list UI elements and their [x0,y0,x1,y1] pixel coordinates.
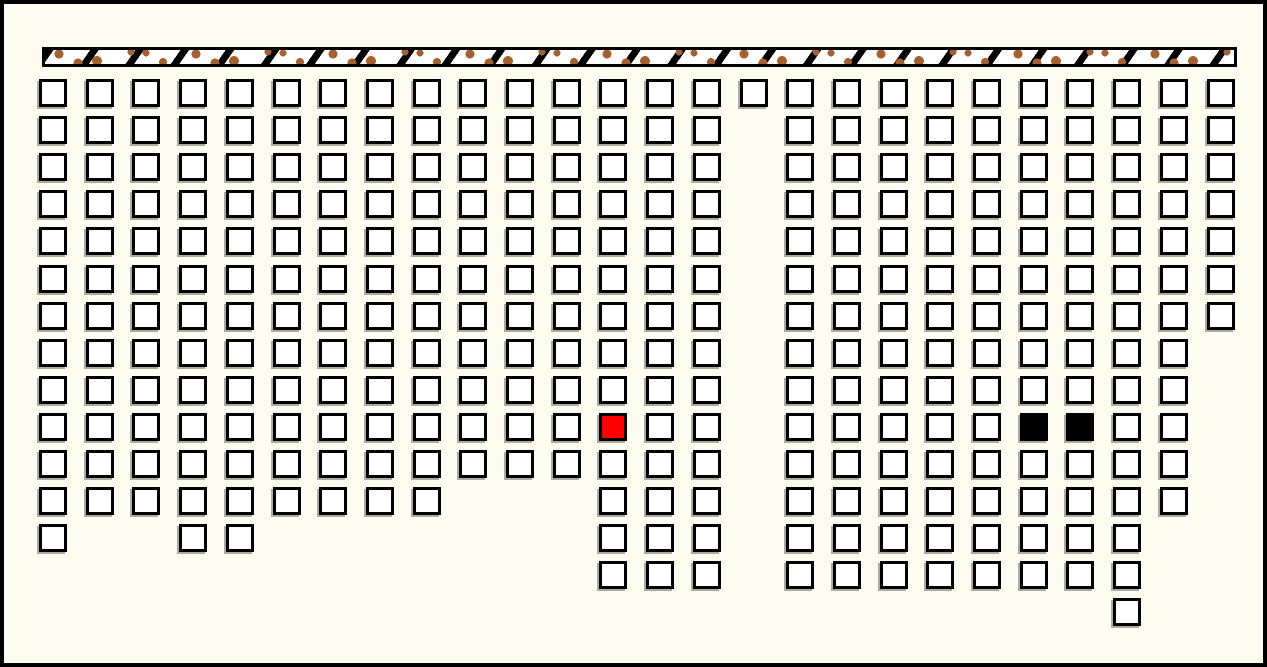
seat-cell[interactable] [366,265,394,293]
seat-cell[interactable] [973,302,1001,330]
seat-cell[interactable] [880,153,908,181]
seat-cell[interactable] [226,524,254,552]
seat-cell[interactable] [926,450,954,478]
seat-cell[interactable] [179,153,207,181]
seat-cell[interactable] [273,265,301,293]
seat-cell[interactable] [413,265,441,293]
seat-cell[interactable] [1207,116,1235,144]
seat-cell[interactable] [273,190,301,218]
seat-cell[interactable] [693,116,721,144]
seat-cell[interactable] [693,190,721,218]
seat-cell[interactable] [319,265,347,293]
seat-cell[interactable] [646,376,674,404]
seat-cell[interactable] [786,302,814,330]
seat-cell[interactable] [973,153,1001,181]
seat-cell[interactable] [1020,450,1048,478]
seat-cell[interactable] [1066,487,1094,515]
seat-cell[interactable] [833,227,861,255]
seat-cell[interactable] [646,79,674,107]
seat-cell[interactable] [880,524,908,552]
seat-cell[interactable] [973,227,1001,255]
seat-cell[interactable] [319,190,347,218]
seat-cell[interactable] [1020,302,1048,330]
seat-cell[interactable] [132,487,160,515]
seat-cell[interactable] [553,265,581,293]
seat-cell[interactable] [179,79,207,107]
seat-cell[interactable] [413,116,441,144]
seat-cell[interactable] [273,450,301,478]
seat-cell[interactable] [1160,153,1188,181]
seat-cell[interactable] [1160,450,1188,478]
seat-cell[interactable] [880,227,908,255]
seat-cell[interactable] [833,79,861,107]
seat-cell[interactable] [506,227,534,255]
seat-cell[interactable] [553,227,581,255]
seat-cell[interactable] [179,413,207,441]
seat-cell[interactable] [1020,153,1048,181]
seat-cell[interactable] [973,524,1001,552]
seat-cell[interactable] [693,339,721,367]
seat-cell[interactable] [273,79,301,107]
seat-cell[interactable] [973,561,1001,589]
seat-cell[interactable] [646,450,674,478]
seat-cell[interactable] [1113,450,1141,478]
seat-cell[interactable] [366,190,394,218]
seat-cell[interactable] [1066,227,1094,255]
seat-cell[interactable] [459,79,487,107]
seat-cell[interactable] [880,376,908,404]
seat-cell[interactable] [599,487,627,515]
seat-cell[interactable] [319,153,347,181]
seat-cell[interactable] [833,153,861,181]
seat-cell[interactable] [366,79,394,107]
seat-cell[interactable] [926,227,954,255]
seat-cell[interactable] [413,450,441,478]
seat-cell[interactable] [1066,339,1094,367]
seat-cell[interactable] [1020,376,1048,404]
seat-cell[interactable] [226,153,254,181]
seat-cell[interactable] [366,376,394,404]
seat-cell[interactable] [1207,153,1235,181]
seat-cell[interactable] [226,265,254,293]
seat-cell[interactable] [740,79,768,107]
seat-cell[interactable] [273,153,301,181]
seat-cell[interactable] [39,79,67,107]
seat-cell[interactable] [693,302,721,330]
seat-cell[interactable] [553,339,581,367]
seat-cell[interactable] [506,376,534,404]
seat-cell[interactable] [226,302,254,330]
seat-cell[interactable] [833,265,861,293]
seat-cell[interactable] [1113,487,1141,515]
seat-cell[interactable] [599,153,627,181]
seat-cell[interactable] [1066,265,1094,293]
seat-cell[interactable] [132,79,160,107]
seat-cell[interactable] [880,450,908,478]
seat-cell[interactable] [132,265,160,293]
seat-cell[interactable] [926,524,954,552]
seat-cell[interactable] [86,450,114,478]
seat-cell[interactable] [926,487,954,515]
seat-cell[interactable] [226,190,254,218]
seat-cell[interactable] [1207,190,1235,218]
seat-cell[interactable] [1066,116,1094,144]
seat-cell[interactable] [179,376,207,404]
seat-cell[interactable] [132,450,160,478]
seat-cell[interactable] [319,227,347,255]
seat-cell[interactable] [1160,339,1188,367]
seat-cell[interactable] [553,190,581,218]
seat-cell[interactable] [319,339,347,367]
seat-cell[interactable] [226,339,254,367]
seat-cell[interactable] [413,153,441,181]
seat-cell[interactable] [39,227,67,255]
seat-cell[interactable] [1113,339,1141,367]
seat-cell[interactable] [1113,227,1141,255]
seat-cell[interactable] [599,227,627,255]
seat-cell[interactable] [973,265,1001,293]
seat-cell[interactable] [646,487,674,515]
seat-cell[interactable] [459,190,487,218]
seat-cell[interactable] [926,302,954,330]
seat-cell[interactable] [833,413,861,441]
seat-cell[interactable] [833,116,861,144]
seat-cell[interactable] [366,487,394,515]
seat-cell[interactable] [132,302,160,330]
seat-cell[interactable] [1020,190,1048,218]
seat-cell[interactable] [366,339,394,367]
seat-cell[interactable] [86,190,114,218]
seat-cell[interactable] [926,413,954,441]
seat-cell[interactable] [413,376,441,404]
seat-cell[interactable] [926,376,954,404]
seat-cell-black[interactable] [1020,413,1048,441]
seat-cell[interactable] [459,227,487,255]
seat-cell[interactable] [1160,265,1188,293]
seat-cell[interactable] [1113,265,1141,293]
seat-cell[interactable] [226,487,254,515]
seat-cell[interactable] [1160,376,1188,404]
seat-cell[interactable] [693,450,721,478]
seat-cell[interactable] [599,524,627,552]
seat-cell[interactable] [39,376,67,404]
seat-cell[interactable] [39,116,67,144]
seat-cell[interactable] [226,79,254,107]
seat-cell[interactable] [693,153,721,181]
seat-cell[interactable] [1066,561,1094,589]
seat-cell[interactable] [39,302,67,330]
seat-cell[interactable] [273,116,301,144]
seat-cell[interactable] [273,487,301,515]
seat-cell[interactable] [973,450,1001,478]
seat-cell[interactable] [132,227,160,255]
seat-cell[interactable] [553,413,581,441]
seat-cell[interactable] [413,302,441,330]
seat-cell[interactable] [926,339,954,367]
seat-cell[interactable] [786,190,814,218]
seat-cell[interactable] [1113,190,1141,218]
seat-cell[interactable] [1020,116,1048,144]
seat-cell[interactable] [786,116,814,144]
seat-cell[interactable] [132,190,160,218]
seat-cell[interactable] [1207,79,1235,107]
seat-cell[interactable] [1066,376,1094,404]
seat-cell[interactable] [132,116,160,144]
seat-cell[interactable] [179,524,207,552]
seat-cell[interactable] [926,265,954,293]
seat-cell[interactable] [833,561,861,589]
seat-cell[interactable] [786,153,814,181]
seat-cell[interactable] [459,376,487,404]
seat-cell[interactable] [693,524,721,552]
seat-cell[interactable] [646,413,674,441]
seat-cell[interactable] [880,561,908,589]
seat-cell[interactable] [39,339,67,367]
seat-cell[interactable] [39,450,67,478]
seat-cell[interactable] [459,339,487,367]
seat-cell[interactable] [506,265,534,293]
seat-cell[interactable] [1160,413,1188,441]
seat-cell[interactable] [319,116,347,144]
seat-cell[interactable] [693,413,721,441]
seat-cell[interactable] [693,376,721,404]
seat-cell[interactable] [693,79,721,107]
seat-cell[interactable] [273,302,301,330]
seat-cell[interactable] [39,190,67,218]
seat-cell[interactable] [1113,598,1141,626]
seat-cell[interactable] [413,487,441,515]
seat-cell[interactable] [880,79,908,107]
seat-cell[interactable] [1020,561,1048,589]
seat-cell[interactable] [366,153,394,181]
seat-cell[interactable] [599,376,627,404]
seat-cell[interactable] [413,339,441,367]
seat-cell[interactable] [506,339,534,367]
seat-cell[interactable] [86,302,114,330]
seat-cell[interactable] [786,524,814,552]
seat-cell[interactable] [226,376,254,404]
seat-cell[interactable] [1113,524,1141,552]
seat-cell[interactable] [1066,524,1094,552]
seat-cell[interactable] [1066,79,1094,107]
seat-cell[interactable] [39,413,67,441]
seat-cell[interactable] [86,153,114,181]
seat-cell[interactable] [1113,376,1141,404]
seat-cell[interactable] [880,487,908,515]
seat-cell[interactable] [1113,302,1141,330]
seat-cell[interactable] [39,524,67,552]
seat-cell[interactable] [646,265,674,293]
seat-cell[interactable] [506,450,534,478]
seat-cell[interactable] [1160,227,1188,255]
seat-cell[interactable] [973,116,1001,144]
seat-cell[interactable] [1020,79,1048,107]
seat-cell[interactable] [973,487,1001,515]
seat-cell[interactable] [646,190,674,218]
seat-cell[interactable] [880,339,908,367]
seat-cell[interactable] [880,265,908,293]
seat-cell[interactable] [179,265,207,293]
seat-cell[interactable] [1160,302,1188,330]
seat-cell[interactable] [1113,116,1141,144]
seat-cell[interactable] [273,413,301,441]
seat-cell[interactable] [786,450,814,478]
seat-cell[interactable] [1066,302,1094,330]
seat-cell[interactable] [833,524,861,552]
seat-cell[interactable] [926,79,954,107]
seat-cell[interactable] [1160,116,1188,144]
seat-cell[interactable] [786,227,814,255]
seat-cell[interactable] [553,79,581,107]
seat-cell[interactable] [599,190,627,218]
seat-cell[interactable] [413,190,441,218]
seat-cell[interactable] [646,153,674,181]
seat-cell[interactable] [833,487,861,515]
seat-cell[interactable] [786,265,814,293]
seat-cell[interactable] [833,190,861,218]
seat-cell[interactable] [506,116,534,144]
seat-cell[interactable] [319,487,347,515]
seat-cell-black[interactable] [1066,413,1094,441]
seat-cell[interactable] [973,376,1001,404]
seat-cell[interactable] [86,376,114,404]
seat-cell[interactable] [179,450,207,478]
seat-cell[interactable] [646,302,674,330]
seat-cell[interactable] [132,413,160,441]
seat-cell[interactable] [1113,561,1141,589]
seat-cell[interactable] [86,79,114,107]
seat-cell[interactable] [506,302,534,330]
seat-cell[interactable] [413,227,441,255]
seat-cell[interactable] [553,450,581,478]
seat-cell[interactable] [786,79,814,107]
seat-cell[interactable] [693,227,721,255]
seat-cell[interactable] [179,190,207,218]
seat-cell[interactable] [86,116,114,144]
seat-cell[interactable] [1020,487,1048,515]
seat-cell[interactable] [693,561,721,589]
seat-cell[interactable] [506,153,534,181]
seat-cell[interactable] [786,561,814,589]
seat-cell-red[interactable] [599,413,627,441]
seat-cell[interactable] [179,302,207,330]
seat-cell[interactable] [226,227,254,255]
seat-cell[interactable] [226,450,254,478]
seat-cell[interactable] [506,79,534,107]
seat-cell[interactable] [833,302,861,330]
seat-cell[interactable] [506,190,534,218]
seat-cell[interactable] [786,376,814,404]
seat-cell[interactable] [132,339,160,367]
seat-cell[interactable] [646,116,674,144]
seat-cell[interactable] [459,153,487,181]
seat-cell[interactable] [693,265,721,293]
seat-cell[interactable] [833,376,861,404]
seat-cell[interactable] [1066,153,1094,181]
seat-cell[interactable] [226,116,254,144]
seat-cell[interactable] [179,116,207,144]
seat-cell[interactable] [693,487,721,515]
seat-cell[interactable] [1160,487,1188,515]
seat-cell[interactable] [1207,265,1235,293]
seat-cell[interactable] [319,376,347,404]
seat-cell[interactable] [973,190,1001,218]
seat-cell[interactable] [226,413,254,441]
seat-cell[interactable] [973,339,1001,367]
seat-cell[interactable] [926,190,954,218]
seat-cell[interactable] [1207,227,1235,255]
seat-cell[interactable] [1160,79,1188,107]
seat-cell[interactable] [599,561,627,589]
seat-cell[interactable] [926,153,954,181]
seat-cell[interactable] [366,302,394,330]
seat-cell[interactable] [1160,190,1188,218]
seat-cell[interactable] [506,413,534,441]
seat-cell[interactable] [39,487,67,515]
seat-cell[interactable] [459,450,487,478]
seat-cell[interactable] [926,561,954,589]
seat-cell[interactable] [319,302,347,330]
seat-cell[interactable] [553,376,581,404]
seat-cell[interactable] [39,153,67,181]
seat-cell[interactable] [646,524,674,552]
seat-cell[interactable] [319,450,347,478]
seat-cell[interactable] [786,487,814,515]
seat-cell[interactable] [973,413,1001,441]
seat-cell[interactable] [1020,227,1048,255]
seat-cell[interactable] [599,302,627,330]
seat-cell[interactable] [366,450,394,478]
seat-cell[interactable] [646,339,674,367]
seat-cell[interactable] [1113,413,1141,441]
seat-cell[interactable] [366,227,394,255]
seat-cell[interactable] [646,561,674,589]
seat-cell[interactable] [1020,265,1048,293]
seat-cell[interactable] [86,339,114,367]
seat-cell[interactable] [786,413,814,441]
seat-cell[interactable] [1113,79,1141,107]
seat-cell[interactable] [786,339,814,367]
seat-cell[interactable] [1066,190,1094,218]
seat-cell[interactable] [132,153,160,181]
seat-cell[interactable] [459,265,487,293]
seat-cell[interactable] [86,227,114,255]
seat-cell[interactable] [833,450,861,478]
seat-cell[interactable] [179,227,207,255]
seat-cell[interactable] [599,265,627,293]
seat-cell[interactable] [553,153,581,181]
seat-cell[interactable] [86,487,114,515]
seat-cell[interactable] [459,116,487,144]
seat-cell[interactable] [179,487,207,515]
seat-cell[interactable] [179,339,207,367]
seat-cell[interactable] [273,376,301,404]
seat-cell[interactable] [599,339,627,367]
seat-cell[interactable] [1066,450,1094,478]
seat-cell[interactable] [273,339,301,367]
seat-cell[interactable] [880,302,908,330]
seat-cell[interactable] [413,413,441,441]
seat-cell[interactable] [273,227,301,255]
seat-cell[interactable] [366,413,394,441]
seat-cell[interactable] [1020,339,1048,367]
seat-cell[interactable] [1020,524,1048,552]
seat-cell[interactable] [599,79,627,107]
seat-cell[interactable] [880,116,908,144]
seat-cell[interactable] [459,302,487,330]
seat-cell[interactable] [553,302,581,330]
seat-cell[interactable] [319,79,347,107]
